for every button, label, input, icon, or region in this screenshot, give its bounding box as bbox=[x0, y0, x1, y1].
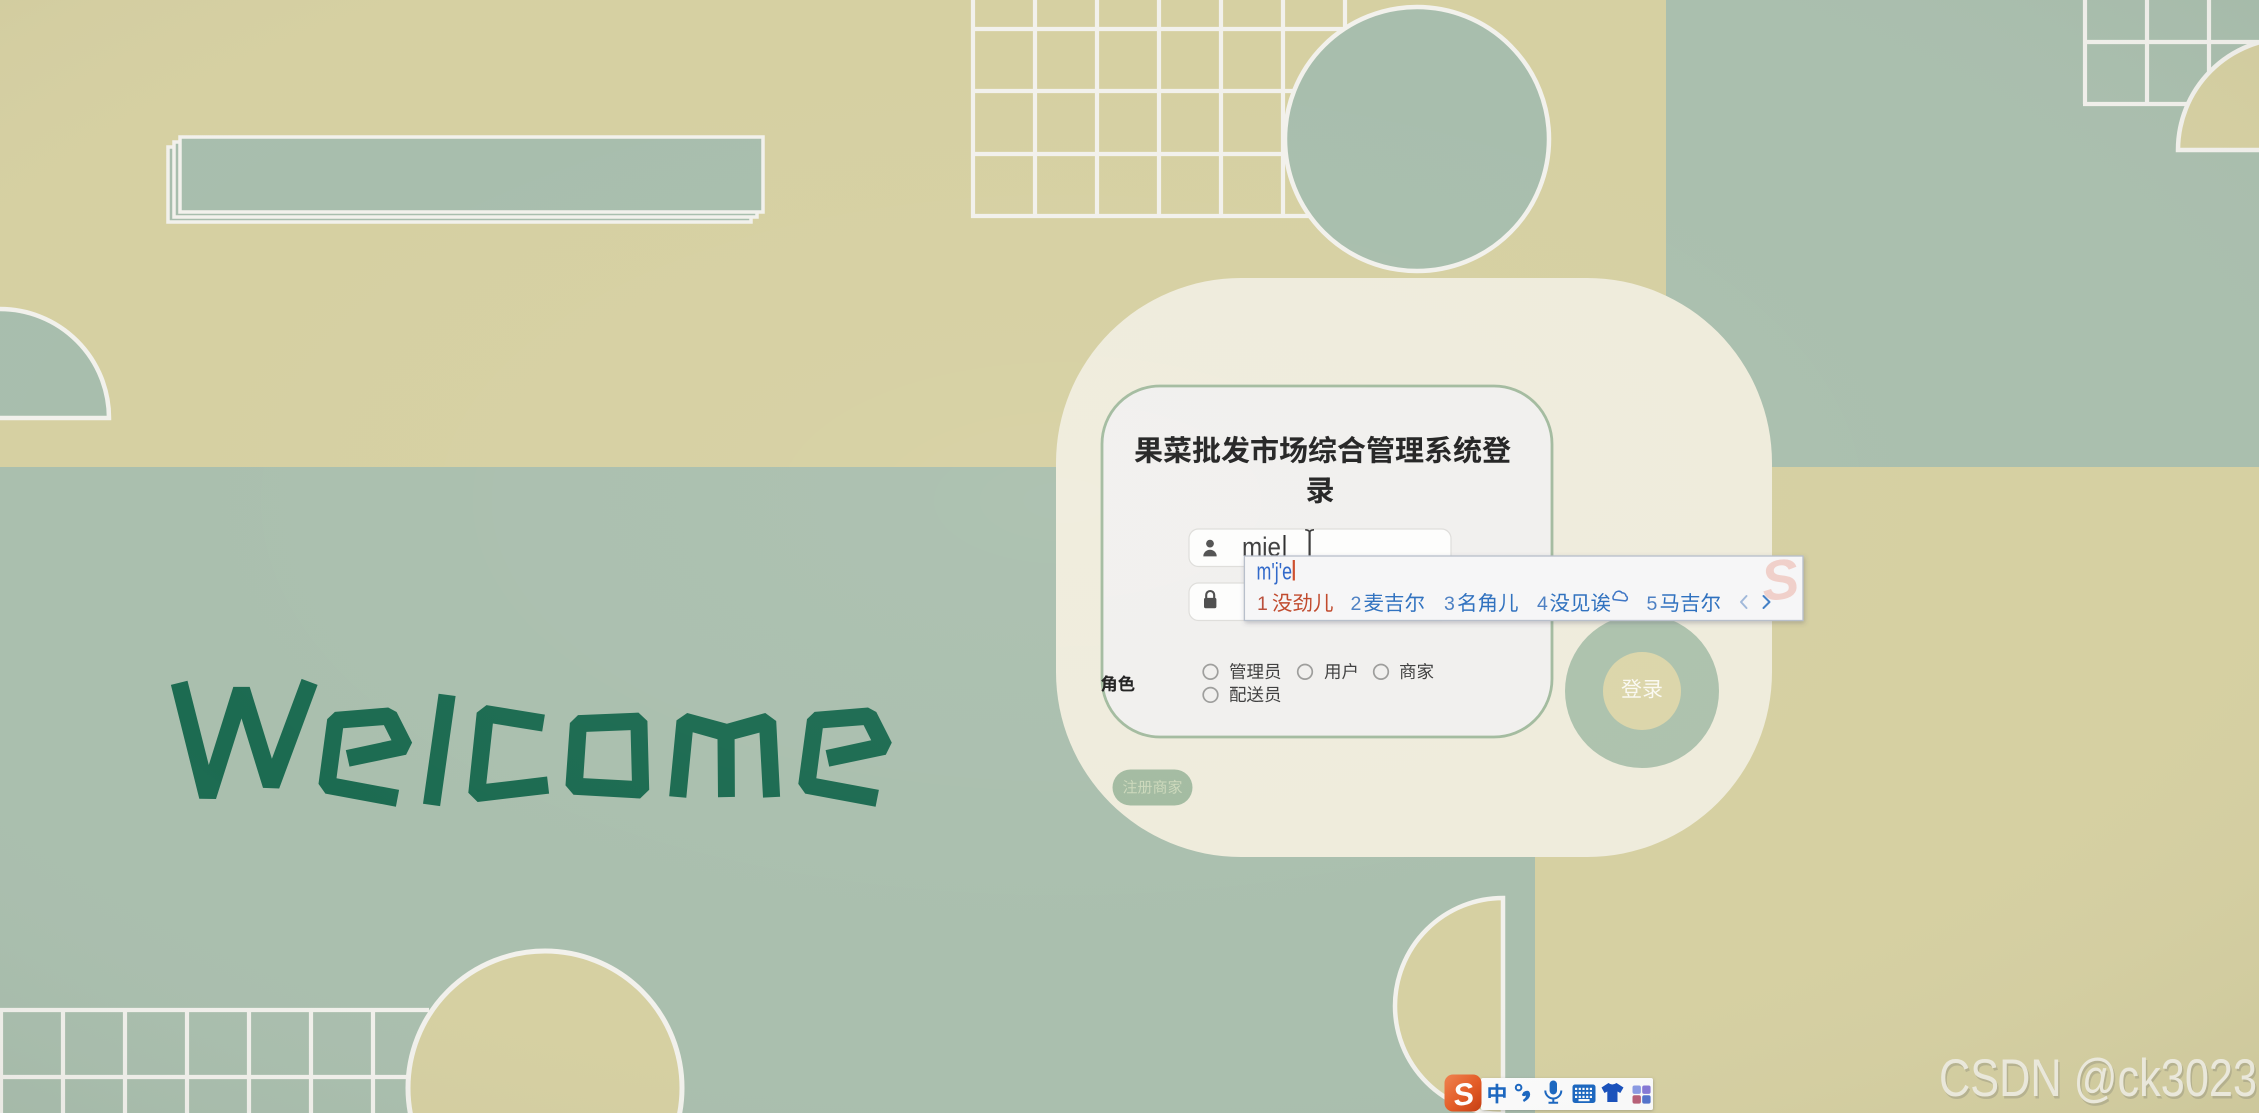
svg-text:CSDN @ck3023: CSDN @ck3023 bbox=[1939, 1049, 2257, 1108]
